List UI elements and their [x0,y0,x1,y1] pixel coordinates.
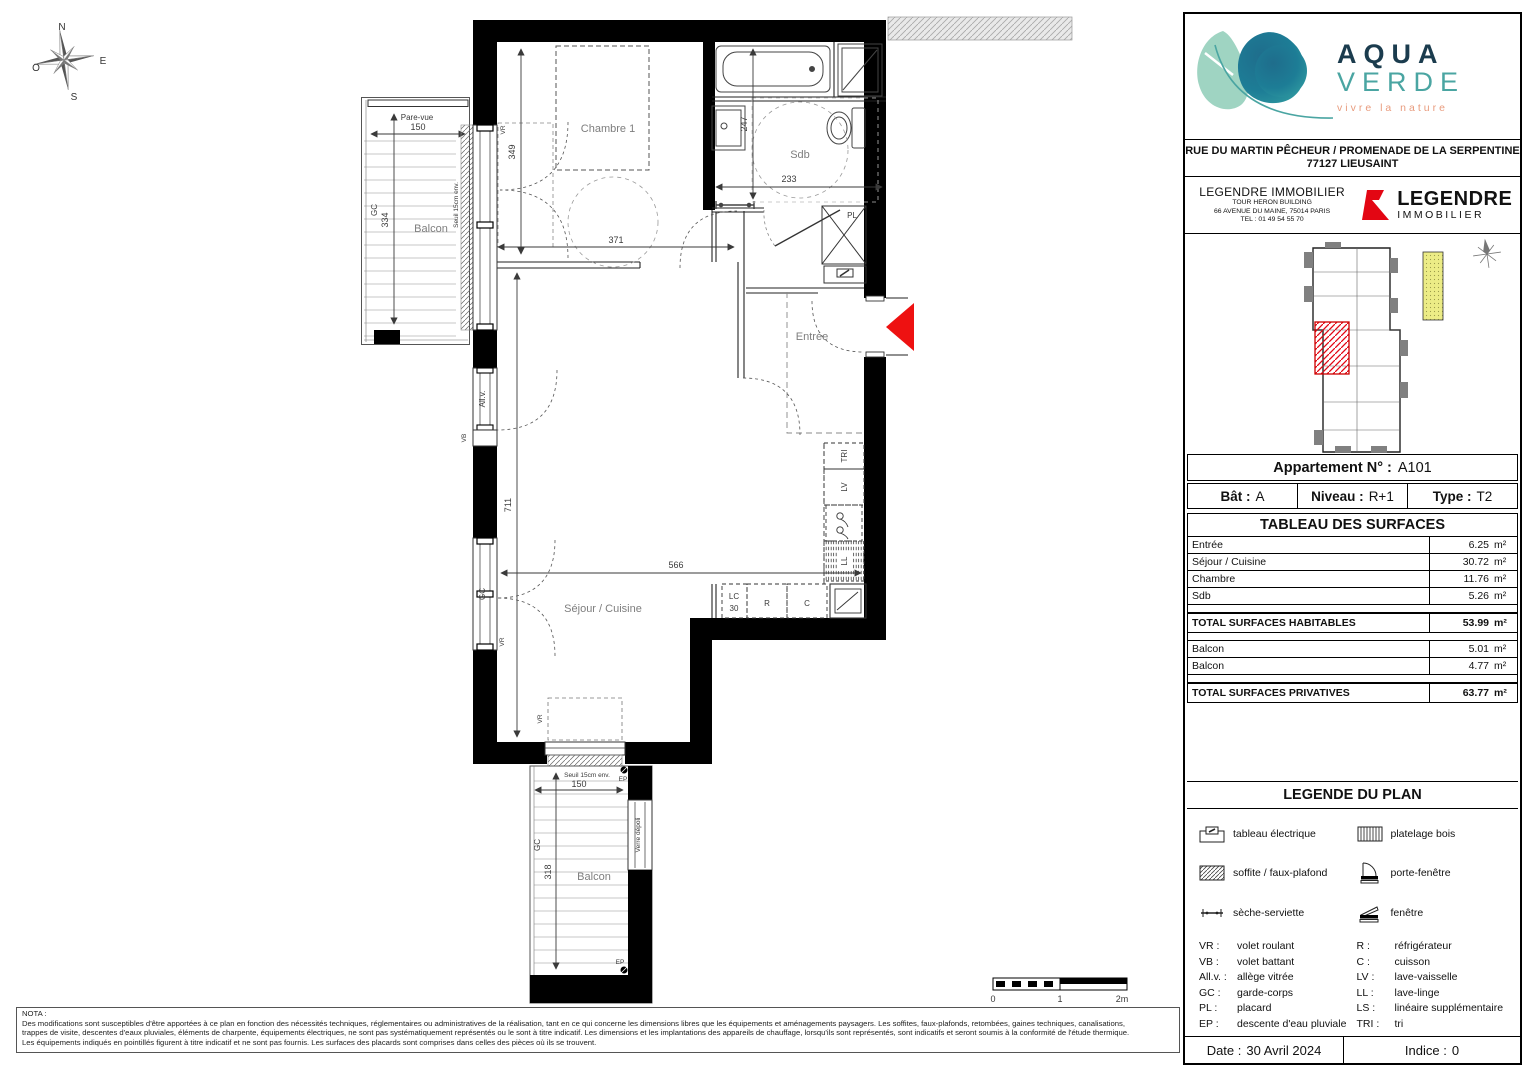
vr-left-label: VR [499,637,506,646]
nota-box: NOTA : Des modifications sont susceptibl… [16,1007,1180,1053]
legend-abbr: TRI :tri [1357,1017,1511,1033]
compass-e: E [100,56,107,67]
dim-371: 371 [608,235,623,245]
nota-title: NOTA : [22,1009,1174,1019]
vb-label: VB [461,434,468,443]
compass-o: O [32,63,40,74]
apartment-type: Type : T2 [1407,484,1517,508]
bed-outline [556,46,649,170]
lc30-label: 30 [730,604,739,613]
project-address: RUE DU MARTIN PÊCHEUR / PROMENADE DE LA … [1185,140,1520,177]
legend-abbr: All.v. :allège vitrée [1199,970,1353,986]
pare-vue-label: Pare-vue [401,113,434,122]
table-gap [1188,675,1517,683]
apartment-info-row: Bât : A Niveau : R+1 Type : T2 [1187,483,1518,509]
compass-s: S [71,92,78,103]
address-line1: RUE DU MARTIN PÊCHEUR / PROMENADE DE LA … [1185,145,1520,158]
aqua-verde-logo-icon [1185,19,1335,135]
cuisson-label: C [804,599,810,608]
dim-233: 233 [781,174,796,184]
balcony-top: Pare-vue 150 GC 334 Balcon Seuil 15cm en… [362,98,470,345]
legendre-logo-sub: IMMOBILIER [1397,209,1512,221]
sdb-label: Sdb [790,149,810,161]
legend-item: porte-fenêtre [1357,861,1511,885]
vr-bottom-label: VR [537,714,544,723]
table-gap [1188,633,1517,641]
legend-item: platelage bois [1357,823,1511,845]
fenetre-icon [1357,901,1383,925]
apartment-number-label: Appartement N° : [1273,460,1392,476]
apartment-bat: Bât : A [1188,484,1297,508]
table-row: Balcon 4.77 m² [1188,658,1517,675]
key-plan-highlighted-unit [1315,322,1349,374]
interior-walls [497,42,908,618]
vr-window-label: VR [500,125,507,134]
chambre-label: Chambre 1 [581,123,635,135]
table-row: Sdb 5.26 m² [1188,588,1517,605]
balcon-bottom-label: Balcon [577,871,611,883]
surfaces-table-title: TABLEAU DES SURFACES [1188,514,1517,537]
nota-line: trappes de visite, descentes d'eaux pluv… [22,1028,1174,1038]
balcony-bottom: Seuil 15cm env. EP 150 GC 318 Balcon Ver… [530,766,652,1003]
legend-abbr: R :réfrigérateur [1357,939,1511,955]
indice-cell: Indice : 0 [1343,1037,1520,1063]
verre-depoli-label: Verre dépoli [635,818,642,853]
ll-label: LL [840,556,849,565]
kitchen: TRI LV LL LC 30 R C [722,443,866,618]
ep-top-label: EP [619,776,628,783]
dim-334: 334 [380,212,390,227]
gc-bottom-label: GC [533,839,542,851]
table-gap [1188,605,1517,613]
nota-line: Des modifications sont susceptibles d'êt… [22,1019,1174,1029]
company-line3: TEL : 01 49 54 55 70 [1185,216,1359,225]
gc-left-label: GC [478,588,487,600]
title-block-panel: AQUA VERDE vivre la nature RUE DU MARTIN… [1183,12,1522,1065]
footer-row: Date : 30 Avril 2024 Indice : 0 [1185,1036,1520,1063]
legendre-logo-text: LEGENDRE [1397,190,1512,209]
total-privatives-row: TOTAL SURFACES PRIVATIVES 63.77 m² [1188,683,1517,702]
placard: PL [822,206,866,283]
dim-150-bottom: 150 [571,779,586,789]
sdb-door-leaf [775,210,840,246]
gc-top-label: GC [370,204,379,216]
lc-label: LC [729,592,739,601]
brand-name-verde: VERDE [1337,68,1465,96]
legend-abbr: EP :descente d'eau pluviale [1199,1017,1353,1033]
porte-fenetre-icon [1357,861,1383,885]
brand-tagline: vivre la nature [1337,102,1465,114]
legend-abbr: LL :lave-linge [1357,986,1511,1002]
surfaces-table: TABLEAU DES SURFACES Entrée 6.25 m² Séjo… [1187,513,1518,703]
legend-abbr: C :cuisson [1357,955,1511,971]
date-cell: Date : 30 Avril 2024 [1185,1037,1343,1063]
dim-150-top: 150 [410,122,425,132]
company-line1: TOUR HERON BUILDING [1185,199,1359,208]
pl-label: PL [847,211,857,220]
scale-bar: 0 1 2m [990,978,1128,1004]
scale-2m: 2m [1116,994,1129,1004]
refrigerateur-label: R [764,599,770,608]
legend-abbr: LS :linéaire supplémentaire [1357,1001,1511,1017]
dim-318: 318 [543,864,553,879]
apartment-title: Appartement N° : A101 [1187,454,1518,481]
legend-abbr: VB :volet battant [1199,955,1353,971]
company-block: LEGENDRE IMMOBILIER TOUR HERON BUILDING … [1185,177,1520,234]
legend-abbr: VR :volet roulant [1199,939,1353,955]
key-plan-compass-icon [1471,238,1503,270]
soffite-band [888,17,1072,40]
company-name: LEGENDRE IMMOBILIER [1185,185,1359,199]
floorplan-drawing: N E O S Pare-vue 150 GC 334 Balcon Seuil… [0,0,1175,1080]
wc-tank [852,108,865,148]
dim-711: 711 [503,498,513,512]
legendre-logo-icon [1359,188,1393,222]
dim-349: 349 [507,144,517,159]
legend-abbr: GC :garde-corps [1199,986,1353,1002]
sejour-label: Séjour / Cuisine [564,603,642,615]
left-windows: VR All.v. VB GC VR [461,125,507,650]
key-plan-garden [1423,252,1443,320]
table-row: Chambre 11.76 m² [1188,571,1517,588]
dim-247: 247 [739,116,749,131]
key-plan [1185,234,1520,454]
tri-label: TRI [840,450,849,463]
dim-566: 566 [668,560,683,570]
compass-rose: N E O S [30,22,107,103]
allv-label: All.v. [478,391,487,408]
legend-abbr: PL :placard [1199,1001,1353,1017]
legend-title: LEGENDE DU PLAN [1187,781,1518,809]
walls [473,20,886,764]
table-row: Balcon 5.01 m² [1188,641,1517,658]
apartment-number-value: A101 [1398,460,1432,476]
scale-0: 0 [990,994,995,1004]
balcon-top-label: Balcon [414,223,448,235]
platelage-bois-icon [1357,823,1383,845]
compass-n: N [58,22,65,33]
floorplan-sheet: N E O S Pare-vue 150 GC 334 Balcon Seuil… [0,0,1528,1080]
empty-space [1185,703,1520,781]
legend-abbr: LV :lave-vaisselle [1357,970,1511,986]
room-sejour: Séjour / Cuisine 711 566 VR [497,273,861,766]
seuil-top-label: Seuil 15cm env. [453,182,460,228]
legend-item: sèche-serviette [1199,901,1353,925]
apartment-niveau: Niveau : R+1 [1297,484,1407,508]
brand-name-aqua: AQUA [1337,40,1465,68]
room-entree: Entrée [743,292,914,435]
pare-vue-screen [368,100,468,107]
legend-item: tableau électrique [1199,823,1353,845]
total-habitables-row: TOTAL SURFACES HABITABLES 53.99 m² [1188,613,1517,633]
room-chambre: Chambre 1 349 371 [498,46,737,268]
seche-serviette-icon [1199,902,1225,924]
tableau-electrique-icon [1199,823,1225,845]
lv-label: LV [840,482,849,492]
legend-body: tableau électrique platelage bois soffit… [1185,809,1520,1036]
brand-header: AQUA VERDE vivre la nature [1185,14,1520,140]
entrance-arrow [886,303,914,351]
nota-line: Les équipements indiqués en pointillés f… [22,1038,1174,1048]
legend-item: fenêtre [1357,901,1511,925]
company-line2: 66 AVENUE DU MAINE, 75014 PARIS [1185,208,1359,217]
table-row: Séjour / Cuisine 30.72 m² [1188,554,1517,571]
legend-item: soffite / faux-plafond [1199,861,1353,885]
address-line2: 77127 LIEUSAINT [1185,158,1520,171]
seuil-bottom-label: Seuil 15cm env. [564,772,610,779]
scale-1: 1 [1057,994,1062,1004]
key-plan-drawing [1185,234,1518,454]
soffite-icon [1199,862,1225,884]
ep-bottom-label: EP [616,959,625,966]
table-row: Entrée 6.25 m² [1188,537,1517,554]
